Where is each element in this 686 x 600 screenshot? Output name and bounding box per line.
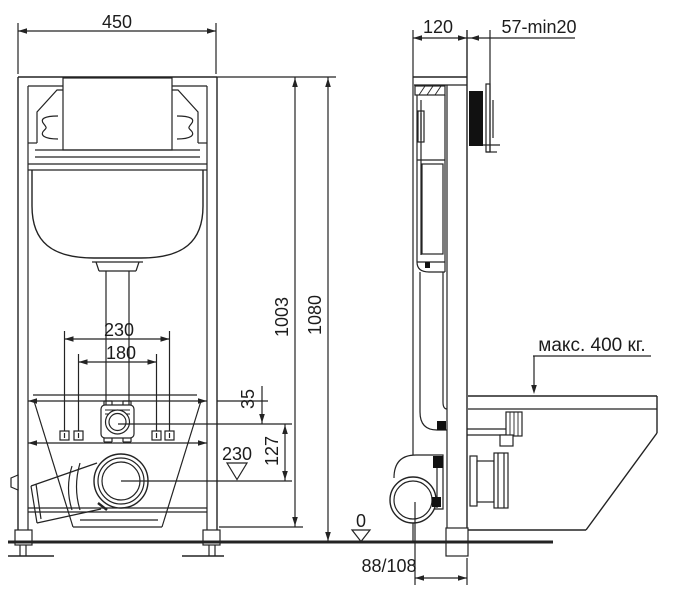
dim-flush-offset-label: 35 <box>238 389 258 409</box>
flush-outlet <box>101 401 134 442</box>
right-clip <box>177 116 193 139</box>
dim-flush-offset: 35 <box>238 386 265 424</box>
installation-frame-drawing: 450 120 57-min20 230 180 <box>0 0 686 600</box>
front-view <box>8 77 224 556</box>
datum-triangle-drain <box>227 463 247 480</box>
cistern-access-box <box>28 78 207 170</box>
note-max-load-label: макс. 400 кг. <box>538 335 645 356</box>
cistern-side <box>417 95 445 272</box>
datum-floor-label: 0 <box>356 511 366 531</box>
dim-bolt-inner-label: 180 <box>106 343 136 363</box>
drain-elbow <box>390 455 443 523</box>
datum-floor: 0 <box>352 511 370 542</box>
dim-front-width-label: 450 <box>102 12 132 32</box>
flush-pipe-side <box>420 272 447 430</box>
dim-drain-distance-label: 88/108 <box>361 556 416 576</box>
drain-outlet <box>11 454 148 523</box>
dim-frame-height-label: 1003 <box>272 297 292 337</box>
side-top-bracket <box>415 86 445 95</box>
drain-connector <box>470 453 508 508</box>
dim-front-width: 450 <box>18 12 216 74</box>
dim-overall-height-label: 1080 <box>305 295 325 335</box>
cistern-tank <box>32 170 203 271</box>
dim-flush-to-drain: 127 <box>262 424 288 481</box>
dim-depth-label: 120 <box>423 17 453 37</box>
dim-panel-range-label: 57-min20 <box>501 17 576 37</box>
technical-drawing-page: 450 120 57-min20 230 180 <box>0 0 686 600</box>
side-view <box>390 30 657 556</box>
left-clip <box>42 116 58 139</box>
datum-drain-level: 230 <box>222 444 252 480</box>
datum-drain-level-label: 230 <box>222 444 252 464</box>
supply-stud <box>467 412 522 446</box>
dim-flush-to-drain-label: 127 <box>262 436 282 466</box>
flush-actuator-plate <box>469 84 500 152</box>
dim-bolt-outer-label: 230 <box>104 320 134 340</box>
note-max-load: макс. 400 кг. <box>531 335 651 394</box>
datum-triangle-floor <box>352 530 370 542</box>
actuator-plate-face <box>469 91 483 146</box>
